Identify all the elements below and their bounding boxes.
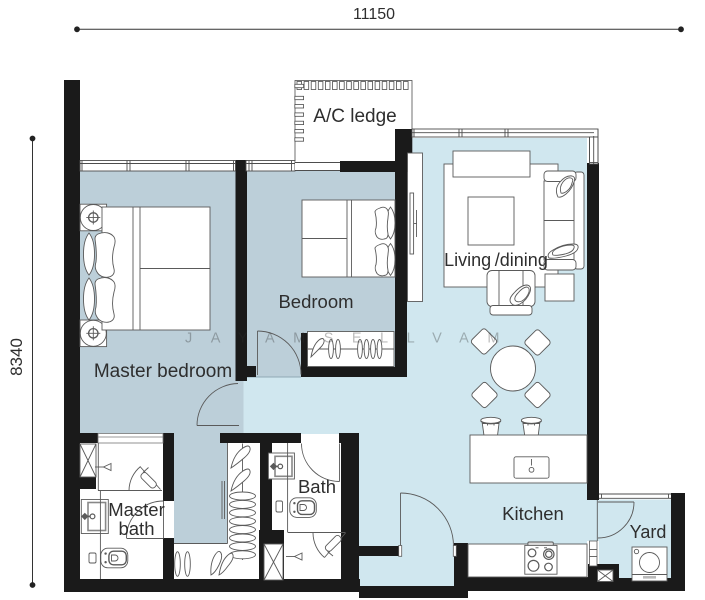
svg-text:8340: 8340 — [7, 338, 26, 376]
svg-text:Bedroom: Bedroom — [278, 291, 353, 312]
svg-text:Master bedroom: Master bedroom — [94, 361, 232, 382]
svg-text:Living /dining: Living /dining — [444, 250, 548, 270]
svg-text:A/C ledge: A/C ledge — [313, 106, 396, 127]
svg-text:JAYAMSELLVAM: JAYAMSELLVAM — [185, 331, 518, 347]
svg-text:Master: Master — [108, 499, 165, 520]
svg-text:Bath: Bath — [298, 476, 336, 497]
svg-text:bath: bath — [118, 518, 154, 539]
svg-text:Kitchen: Kitchen — [502, 503, 564, 524]
svg-text:Yard: Yard — [630, 522, 667, 542]
svg-text:11150: 11150 — [353, 6, 395, 23]
